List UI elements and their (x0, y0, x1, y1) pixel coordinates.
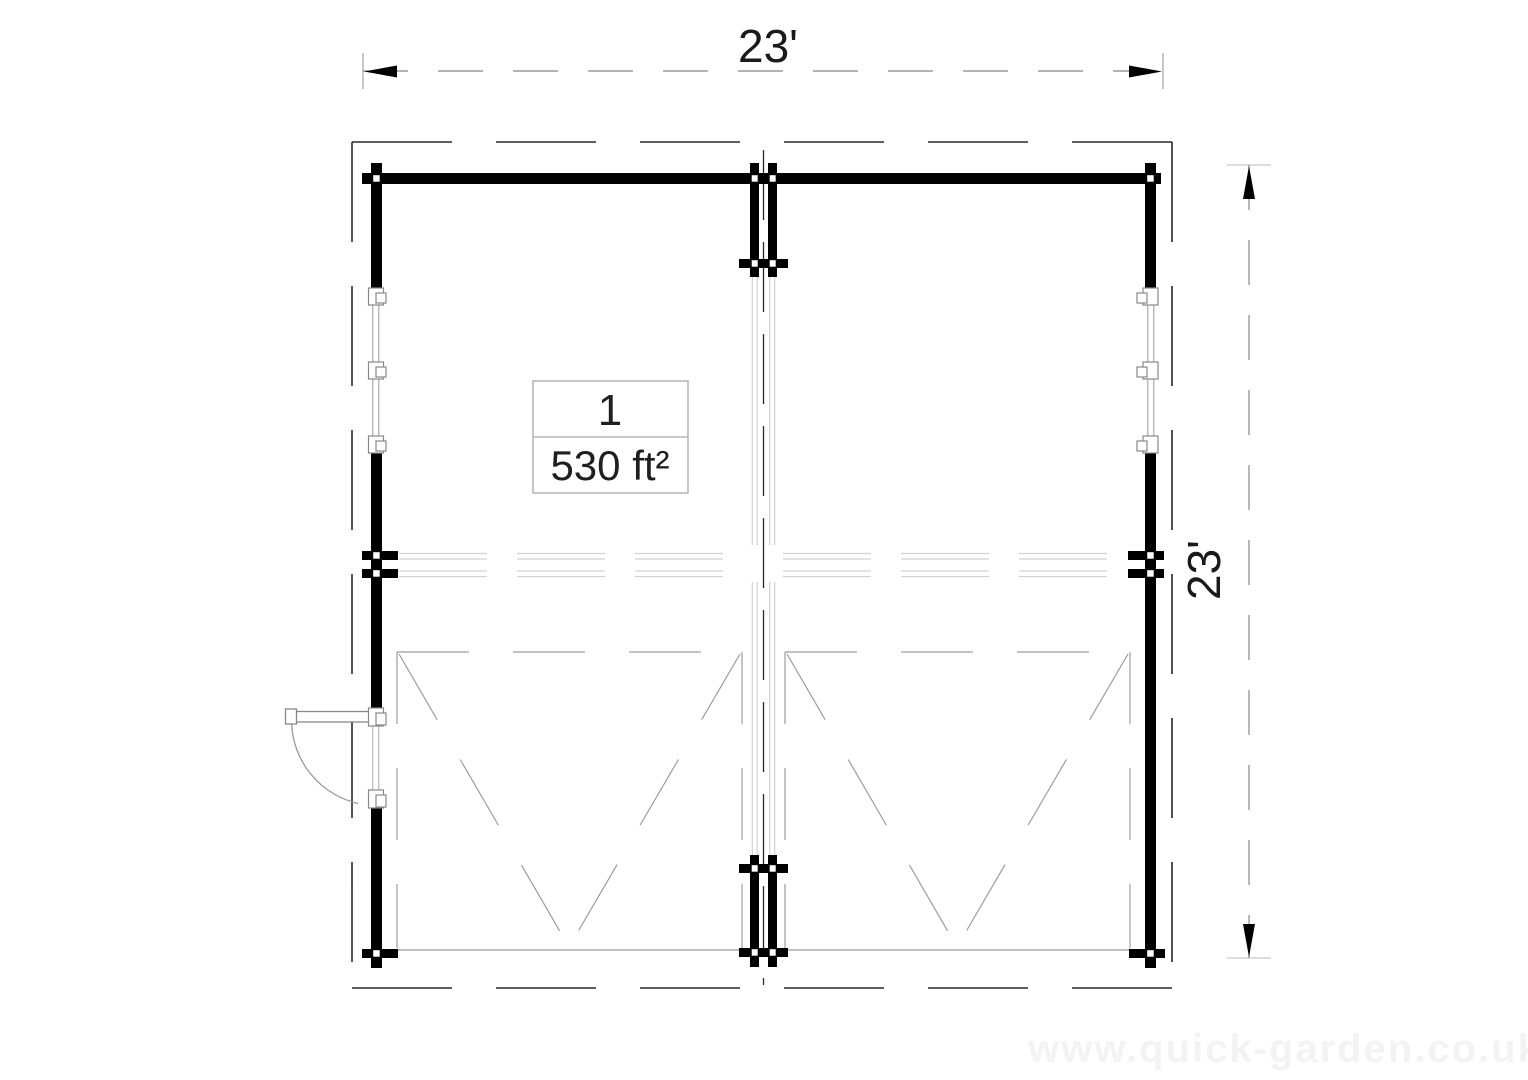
door-latch (376, 795, 386, 807)
bottom-left-corner-stub (362, 949, 398, 958)
garage-right-v-line-b (957, 654, 1128, 947)
dimension-right-label: 23' (1178, 540, 1230, 600)
door-leaf (293, 712, 377, 723)
notch (1147, 950, 1154, 957)
notch (1147, 175, 1154, 182)
left-wall-stub (362, 569, 398, 578)
room-area: 530 ft² (550, 442, 669, 489)
floor-plan-drawing: www.quick-garden.co.uk (0, 0, 1528, 1080)
top-wall (362, 173, 1161, 184)
notch (752, 865, 758, 872)
window-latch (1137, 293, 1147, 303)
left-wall-upper (371, 163, 382, 290)
arrow-up-icon (1243, 166, 1255, 199)
right-wall-upper (1145, 163, 1156, 290)
dimension-right: 23' (1178, 165, 1271, 958)
garage-left-v-line-a (399, 654, 569, 947)
entry-door (286, 708, 387, 808)
notch (752, 175, 758, 182)
notch (373, 950, 380, 957)
window-latch (1137, 367, 1147, 377)
right-wall-stub (1128, 569, 1164, 578)
door-handle-end (286, 709, 297, 724)
notch (373, 175, 380, 182)
right-wall-stub (1128, 551, 1164, 560)
window-latch (376, 367, 386, 377)
arrow-right-icon (1129, 66, 1162, 78)
garage-door-left (397, 652, 742, 948)
arrow-down-icon (1243, 924, 1255, 957)
notch (770, 949, 776, 956)
door-swing-arc (292, 723, 359, 804)
right-wall-lower (1145, 453, 1156, 968)
left-wall-stub (362, 551, 398, 560)
dimension-top-label: 23' (738, 20, 798, 72)
notch (770, 175, 776, 182)
garage-door-right (785, 652, 1130, 948)
dimension-top: 23' (363, 20, 1163, 89)
garage-left-v-line-b (569, 654, 740, 947)
notch (373, 552, 380, 559)
boundary-outline (352, 142, 1172, 988)
window-right (1137, 288, 1158, 453)
left-wall-middle (371, 453, 382, 710)
notch (770, 260, 776, 267)
window-latch (1137, 441, 1147, 451)
watermark-text: www.quick-garden.co.uk (1027, 1027, 1528, 1071)
center-post-bottom-stub (739, 948, 788, 957)
room-label-box: 1 530 ft² (533, 381, 688, 493)
center-post-top-stub (739, 259, 788, 268)
garage-right-v-line-a (787, 654, 957, 947)
window-left (369, 288, 387, 453)
notch (770, 865, 776, 872)
door-hinge (376, 713, 386, 725)
left-wall-lower (371, 806, 382, 968)
center-post-bottom-stub (739, 864, 788, 873)
notch (752, 949, 758, 956)
notch (1147, 552, 1154, 559)
bottom-right-corner-stub (1129, 949, 1165, 958)
room-number: 1 (598, 386, 622, 435)
window-latch (376, 441, 386, 451)
notch (373, 570, 380, 577)
notch (1147, 570, 1154, 577)
floor-plan-canvas: www.quick-garden.co.uk (0, 0, 1528, 1080)
arrow-left-icon (364, 66, 397, 78)
window-latch (376, 293, 386, 303)
notch (752, 260, 758, 267)
